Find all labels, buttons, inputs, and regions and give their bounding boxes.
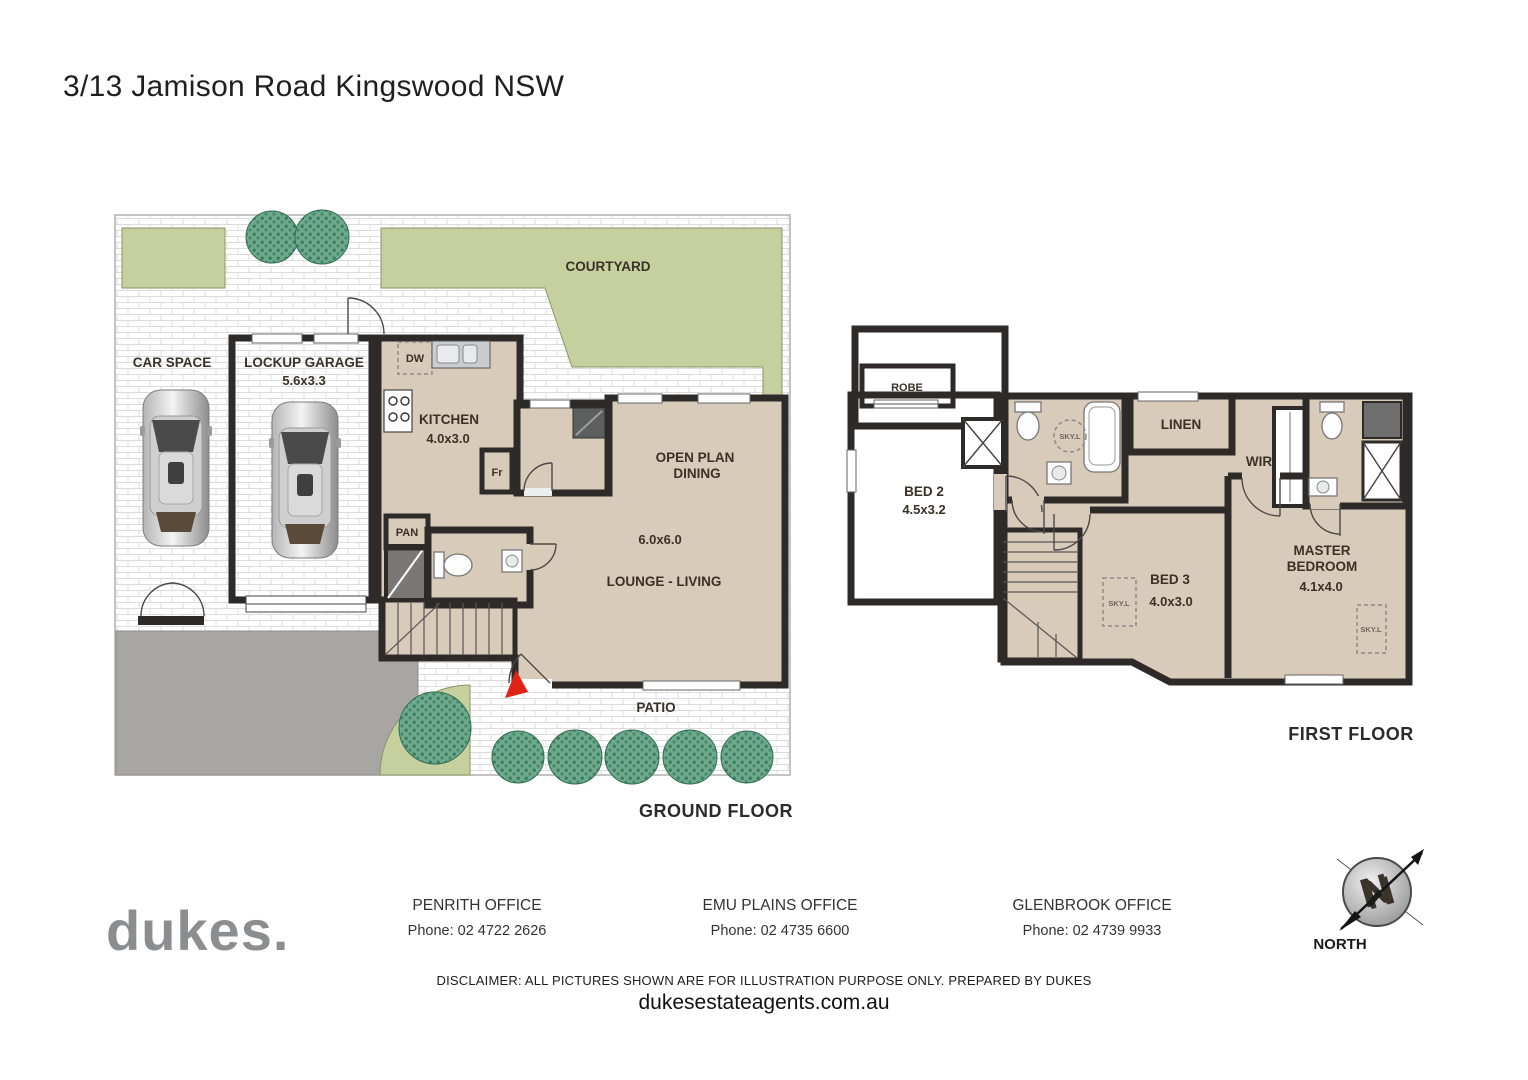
driveway [116, 631, 418, 775]
master-label-1: MASTER [1294, 543, 1351, 558]
office-penrith: PENRITH OFFICE Phone: 02 4722 2626 [367, 897, 587, 939]
courtyard-green-left [122, 228, 225, 288]
tree-icon [605, 730, 659, 784]
bed2-label: BED 2 [904, 484, 944, 499]
basin-bowl-icon [506, 555, 518, 567]
skylight-label: SKY.L [1108, 599, 1130, 608]
master-dims: 4.1x4.0 [1299, 579, 1342, 594]
open-plan-label-1: OPEN PLAN [656, 450, 735, 465]
toilet-bowl-icon [1017, 412, 1039, 440]
kitchen-label: KITCHEN [419, 412, 479, 427]
basin-bowl-icon [1052, 466, 1066, 480]
car-icon [140, 390, 212, 546]
robe-label: ROBE [891, 382, 923, 394]
office-name: GLENBROOK OFFICE [982, 897, 1202, 915]
toilet-bowl-icon [444, 554, 472, 576]
window [847, 450, 856, 492]
laundry-door-gap [524, 488, 552, 496]
window [643, 681, 740, 690]
fridge-label: Fr [492, 467, 504, 479]
office-phone: Phone: 02 4722 2626 [367, 923, 587, 939]
toilet-bowl-icon [1322, 413, 1342, 439]
bed2-door-gap [994, 474, 1007, 510]
tree-icon [295, 210, 349, 264]
bathtub-inner [1089, 407, 1115, 465]
floorplan-page: 3/13 Jamison Road Kingswood NSW [0, 0, 1528, 1080]
office-glenbrook: GLENBROOK OFFICE Phone: 02 4739 9933 [982, 897, 1202, 939]
car-space-label: CAR SPACE [133, 355, 212, 370]
page-title: 3/13 Jamison Road Kingswood NSW [63, 70, 564, 104]
lounge-label: LOUNGE - LIVING [607, 574, 722, 589]
office-phone: Phone: 02 4739 9933 [982, 923, 1202, 939]
ground-floor-title: GROUND FLOOR [639, 801, 793, 821]
dishwasher-label: DW [406, 353, 425, 365]
office-name: PENRITH OFFICE [367, 897, 587, 915]
window [618, 394, 662, 403]
skylight-label: SKY.L [1360, 625, 1382, 634]
office-phone: Phone: 02 4735 6600 [670, 923, 890, 939]
dukes-logo: dukes. [106, 898, 289, 963]
bed2-dims: 4.5x3.2 [902, 502, 945, 517]
office-name: EMU PLAINS OFFICE [670, 897, 890, 915]
window [698, 394, 750, 403]
toilet-icon [1015, 402, 1041, 412]
toilet-icon [1320, 402, 1344, 412]
garage-dims: 5.6x3.3 [282, 373, 325, 388]
carspace-sill [138, 616, 204, 625]
north-label: NORTH [1300, 936, 1380, 953]
window [1285, 675, 1343, 684]
kitchen-dims: 4.0x3.0 [426, 431, 469, 446]
tree-icon [663, 730, 717, 784]
powder-door-gap [526, 544, 534, 570]
master-label-2: BEDROOM [1287, 559, 1358, 574]
ground-floor-plan: COURTYARD CAR SPACE LOCKUP GARAGE 5.6x3.… [100, 200, 800, 830]
window [252, 334, 302, 343]
sink-bowl-right [463, 345, 477, 363]
bathroom-door-gap [1012, 496, 1044, 505]
void-area [855, 329, 1005, 426]
toilet-icon [434, 552, 444, 578]
window [314, 334, 358, 343]
tree-icon [246, 211, 298, 263]
website-link[interactable]: dukesestateagents.com.au [0, 991, 1528, 1015]
sink-bowl-left [437, 345, 459, 363]
disclaimer-text: DISCLAIMER: ALL PICTURES SHOWN ARE FOR I… [0, 973, 1528, 988]
living-dims: 6.0x6.0 [638, 532, 681, 547]
patio-label: PATIO [636, 700, 675, 715]
stove-icon [384, 390, 412, 432]
first-floor-plan: SKY.L [830, 300, 1430, 760]
window [1138, 392, 1198, 401]
window [530, 400, 570, 408]
north-compass-icon: N N [1325, 845, 1435, 935]
bed3-dims: 4.0x3.0 [1149, 594, 1192, 609]
tree-icon [721, 731, 773, 783]
pantry-label: PAN [396, 527, 418, 539]
ensuite-door-gap [1310, 500, 1340, 509]
ensuite-void [1363, 402, 1401, 438]
skylight-label: SKY.L [1059, 432, 1081, 441]
open-plan-label-2: DINING [673, 466, 720, 481]
office-emu-plains: EMU PLAINS OFFICE Phone: 02 4735 6600 [670, 897, 890, 939]
bed3-label: BED 3 [1150, 572, 1190, 587]
courtyard-label: COURTYARD [565, 259, 650, 274]
garage-label: LOCKUP GARAGE [244, 355, 364, 370]
basin-bowl-icon [1317, 481, 1329, 493]
tree-icon [399, 692, 471, 764]
first-floor-title: FIRST FLOOR [1288, 724, 1414, 744]
tree-icon [492, 731, 544, 783]
car-icon [269, 402, 341, 558]
linen-label: LINEN [1161, 417, 1202, 432]
wir-label: WIR [1246, 454, 1272, 469]
tree-icon [548, 730, 602, 784]
